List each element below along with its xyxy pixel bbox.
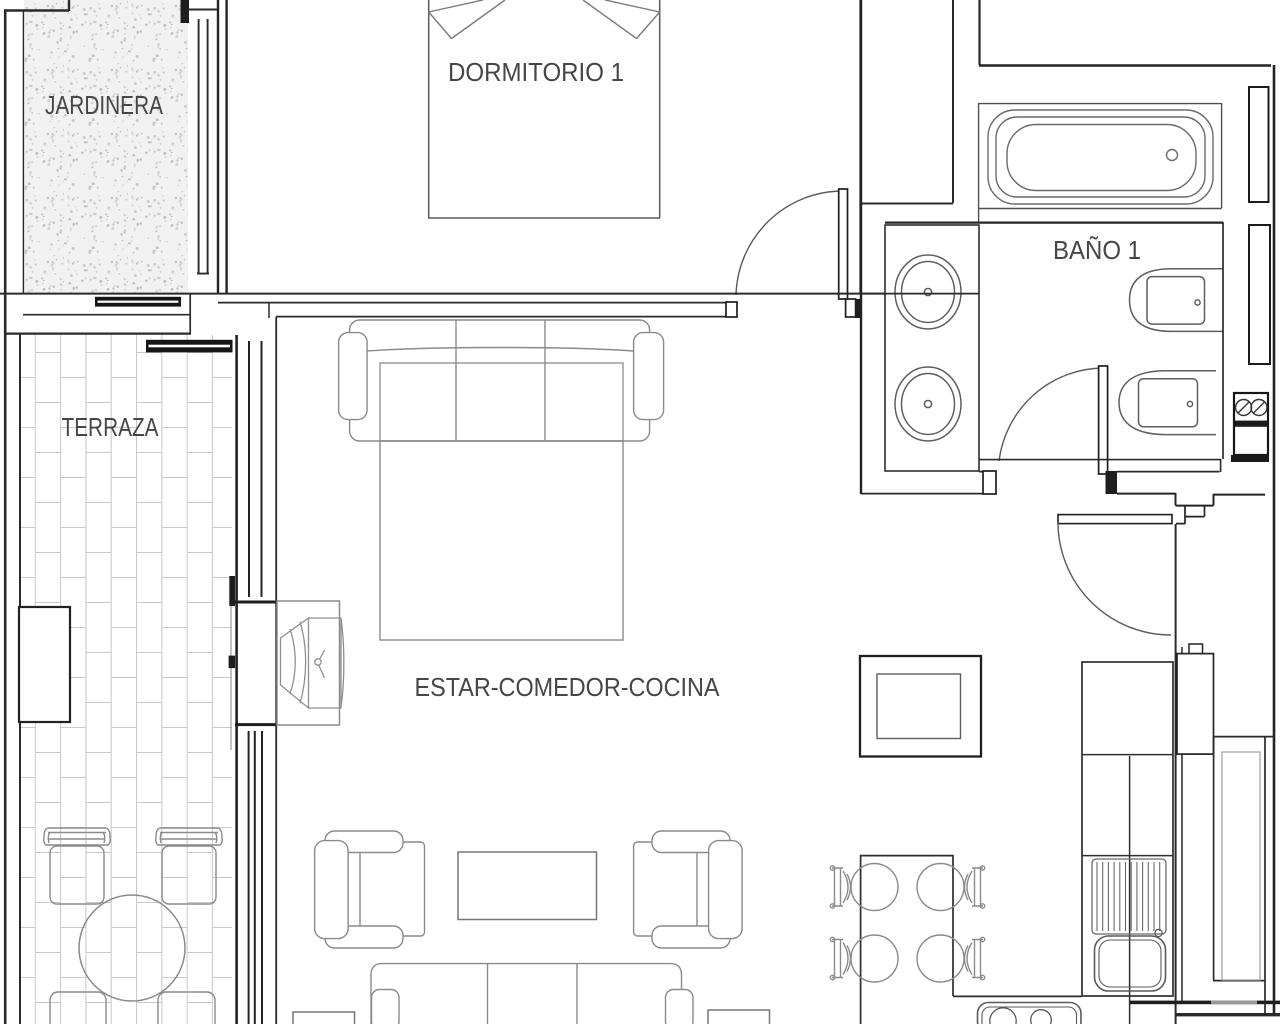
svg-text:DORMITORIO 1: DORMITORIO 1 bbox=[448, 57, 624, 87]
svg-text:TERRAZA: TERRAZA bbox=[62, 412, 160, 442]
svg-text:ESTAR-COMEDOR-COCINA: ESTAR-COMEDOR-COCINA bbox=[415, 672, 721, 702]
svg-text:JARDINERA: JARDINERA bbox=[45, 90, 164, 120]
svg-text:BAÑO 1: BAÑO 1 bbox=[1053, 235, 1141, 265]
